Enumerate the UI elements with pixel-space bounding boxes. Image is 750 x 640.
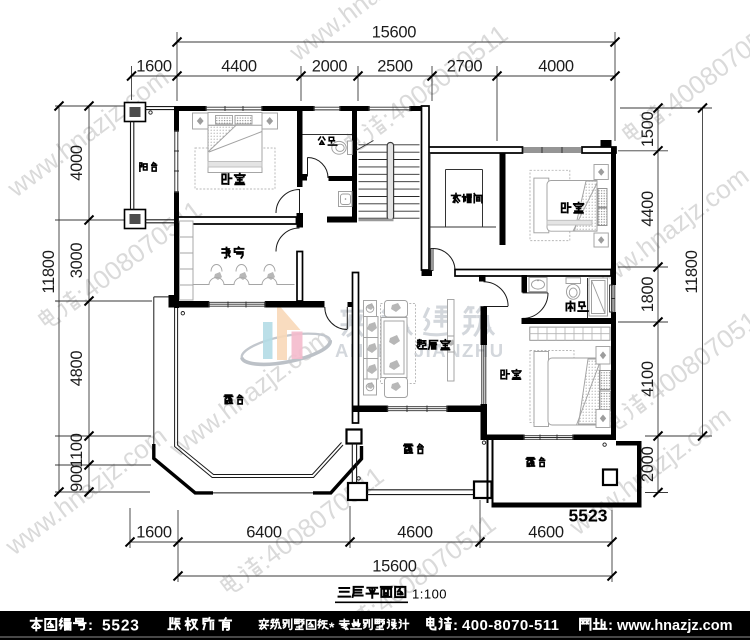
svg-text:4000: 4000 [538, 58, 574, 76]
svg-text:5523: 5523 [102, 618, 140, 635]
svg-text:4400: 4400 [639, 191, 657, 227]
svg-text:1100: 1100 [68, 433, 86, 467]
svg-text:15600: 15600 [372, 24, 417, 42]
svg-text:2500: 2500 [377, 58, 413, 76]
svg-text:15600: 15600 [372, 558, 417, 576]
svg-text:11800: 11800 [683, 250, 701, 293]
svg-text:1600: 1600 [136, 58, 172, 76]
svg-text:www.hnazjz.com: www.hnazjz.com [616, 618, 732, 634]
svg-text:4600: 4600 [397, 524, 433, 542]
svg-text::: : [453, 617, 458, 634]
svg-text:5523: 5523 [569, 506, 608, 526]
svg-text:*: * [329, 619, 335, 635]
svg-text::: : [608, 617, 613, 634]
svg-text:1:100: 1:100 [412, 587, 447, 602]
svg-text:2000: 2000 [312, 58, 348, 76]
svg-text:6400: 6400 [246, 524, 282, 542]
svg-text:2700: 2700 [447, 58, 483, 76]
svg-text:4400: 4400 [221, 58, 257, 76]
svg-text:4100: 4100 [639, 361, 657, 397]
svg-text:4000: 4000 [68, 145, 86, 181]
svg-text::: : [88, 617, 93, 634]
svg-text:1500: 1500 [639, 112, 657, 148]
svg-text:3000: 3000 [68, 243, 86, 279]
svg-text:1800: 1800 [639, 277, 657, 313]
svg-text:400-8070-511: 400-8070-511 [462, 617, 559, 634]
svg-text:1600: 1600 [136, 524, 172, 542]
svg-text:4600: 4600 [528, 524, 564, 542]
svg-text:4800: 4800 [68, 351, 86, 387]
svg-text:900: 900 [68, 465, 86, 492]
svg-text:11800: 11800 [40, 250, 58, 293]
svg-text:2000: 2000 [639, 446, 657, 482]
